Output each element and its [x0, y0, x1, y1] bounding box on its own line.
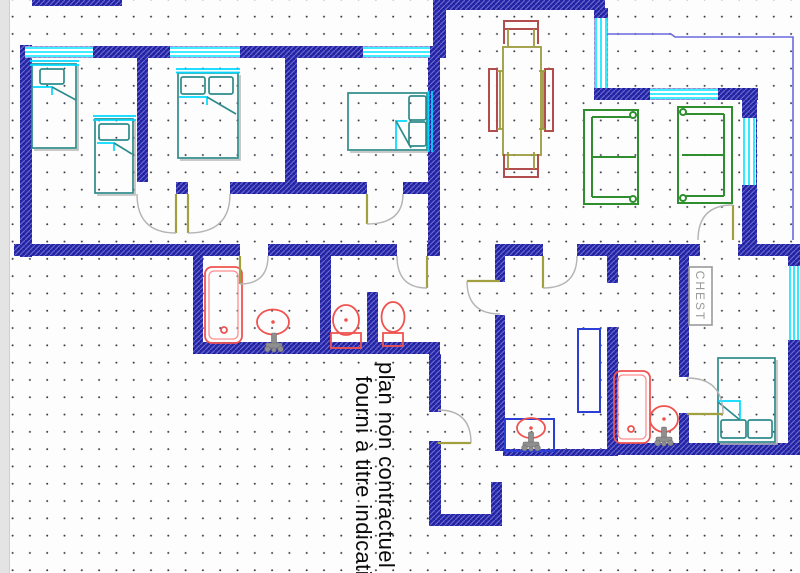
floor-plan-canvas: CHEST plan non contractuel fourni à titr… [0, 0, 800, 573]
wall-segment [32, 0, 122, 6]
disclaimer-line-1: plan non contractuel [373, 362, 399, 568]
floor-plan-drawing: CHEST [0, 0, 800, 573]
window-dining-east [595, 18, 608, 88]
disclaimer-line-2: fourni à titre indicatif [350, 376, 376, 573]
window-living-north [650, 89, 718, 100]
window-bedroom2 [170, 47, 240, 58]
chest-label: CHEST [693, 271, 707, 322]
window-living-east [742, 118, 756, 185]
margin-strip [0, 0, 9, 573]
window-master-east [788, 266, 800, 340]
window-bedroom3 [363, 47, 430, 58]
window-bedroom1 [25, 47, 93, 58]
chest-of-drawers: CHEST [689, 267, 712, 325]
